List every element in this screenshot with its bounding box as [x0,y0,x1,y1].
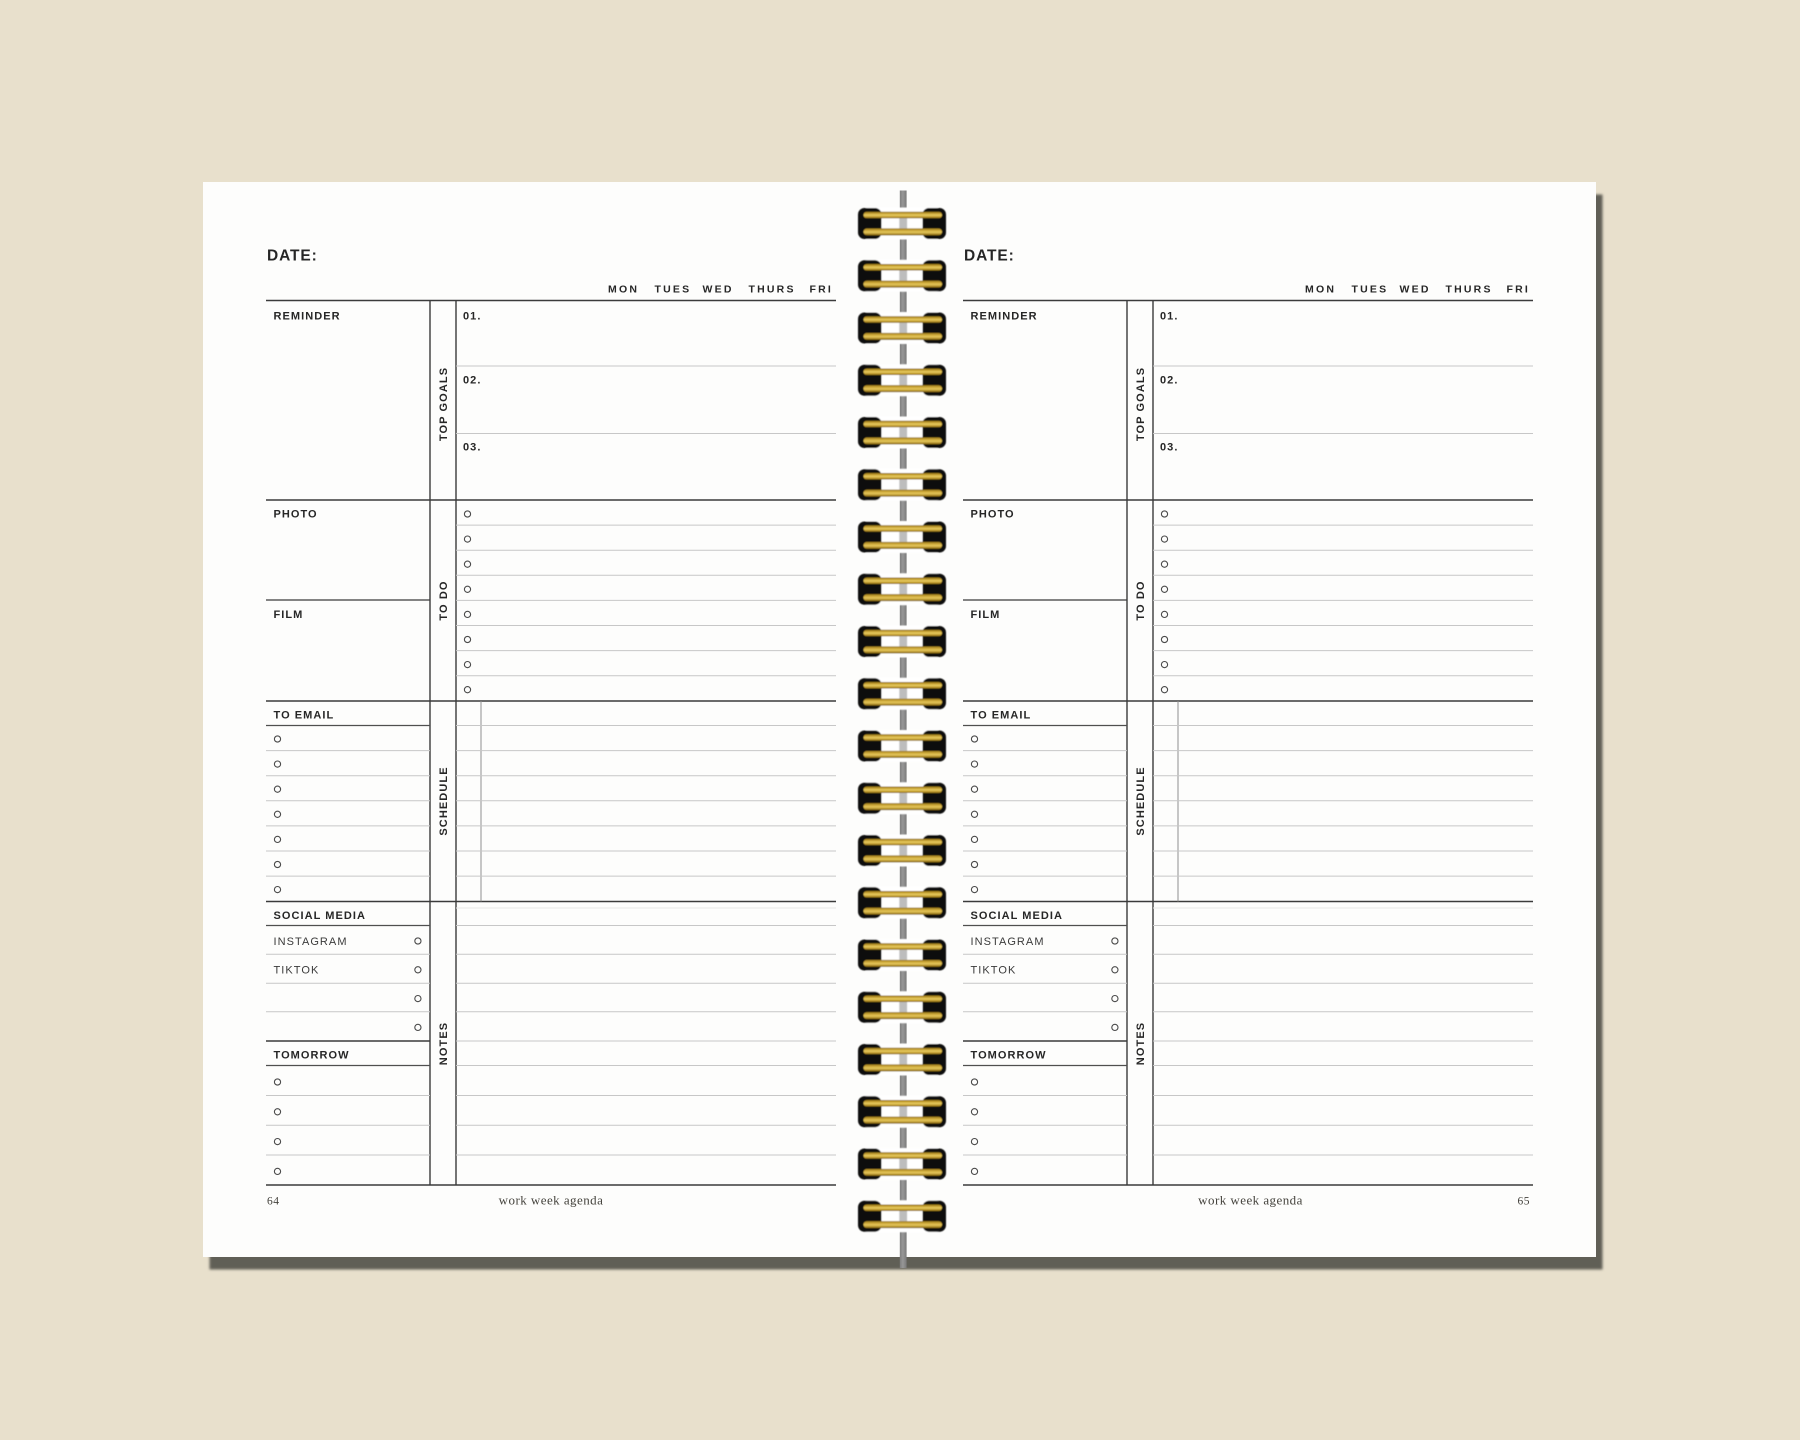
svg-text:REMINDER: REMINDER [274,310,341,322]
svg-text:REMINDER: REMINDER [971,310,1038,322]
svg-text:TO DO: TO DO [1135,580,1147,620]
svg-text:THURS: THURS [749,284,796,296]
svg-text:TOMORROW: TOMORROW [274,1049,350,1061]
svg-text:MON: MON [608,284,639,296]
svg-text:TUES: TUES [655,284,692,296]
svg-text:FILM: FILM [971,609,1001,621]
svg-text:SOCIAL MEDIA: SOCIAL MEDIA [274,910,366,922]
svg-text:TO DO: TO DO [438,580,450,620]
svg-text:NOTES: NOTES [1135,1022,1147,1065]
svg-text:03.: 03. [1160,441,1178,453]
svg-text:FRI: FRI [810,284,834,296]
svg-text:THURS: THURS [1446,284,1493,296]
svg-text:02.: 02. [1160,374,1178,386]
svg-text:FILM: FILM [274,609,304,621]
svg-text:TOMORROW: TOMORROW [971,1049,1047,1061]
svg-text:TIKTOK: TIKTOK [971,964,1017,976]
svg-text:01.: 01. [1160,310,1178,322]
svg-text:65: 65 [1518,1195,1531,1207]
svg-text:SCHEDULE: SCHEDULE [438,766,450,835]
svg-text:SCHEDULE: SCHEDULE [1135,766,1147,835]
svg-text:64: 64 [267,1195,280,1207]
svg-text:01.: 01. [463,310,481,322]
svg-text:TOP GOALS: TOP GOALS [438,367,450,441]
svg-text:INSTAGRAM: INSTAGRAM [274,936,348,948]
svg-text:WED: WED [703,284,734,296]
svg-text:NOTES: NOTES [438,1022,450,1065]
svg-text:work week agenda: work week agenda [499,1192,604,1207]
svg-text:SOCIAL MEDIA: SOCIAL MEDIA [971,910,1063,922]
svg-text:TUES: TUES [1352,284,1389,296]
svg-text:DATE:: DATE: [964,247,1015,264]
svg-text:DATE:: DATE: [267,247,318,264]
svg-text:TIKTOK: TIKTOK [274,964,320,976]
svg-text:TO EMAIL: TO EMAIL [971,709,1032,721]
svg-text:PHOTO: PHOTO [971,509,1015,521]
svg-text:03.: 03. [463,441,481,453]
svg-text:PHOTO: PHOTO [274,509,318,521]
svg-text:INSTAGRAM: INSTAGRAM [971,936,1045,948]
svg-text:TOP GOALS: TOP GOALS [1135,367,1147,441]
svg-text:02.: 02. [463,374,481,386]
svg-text:MON: MON [1305,284,1336,296]
svg-text:FRI: FRI [1507,284,1531,296]
svg-text:WED: WED [1400,284,1431,296]
svg-text:TO EMAIL: TO EMAIL [274,709,335,721]
svg-text:work week agenda: work week agenda [1198,1192,1303,1207]
